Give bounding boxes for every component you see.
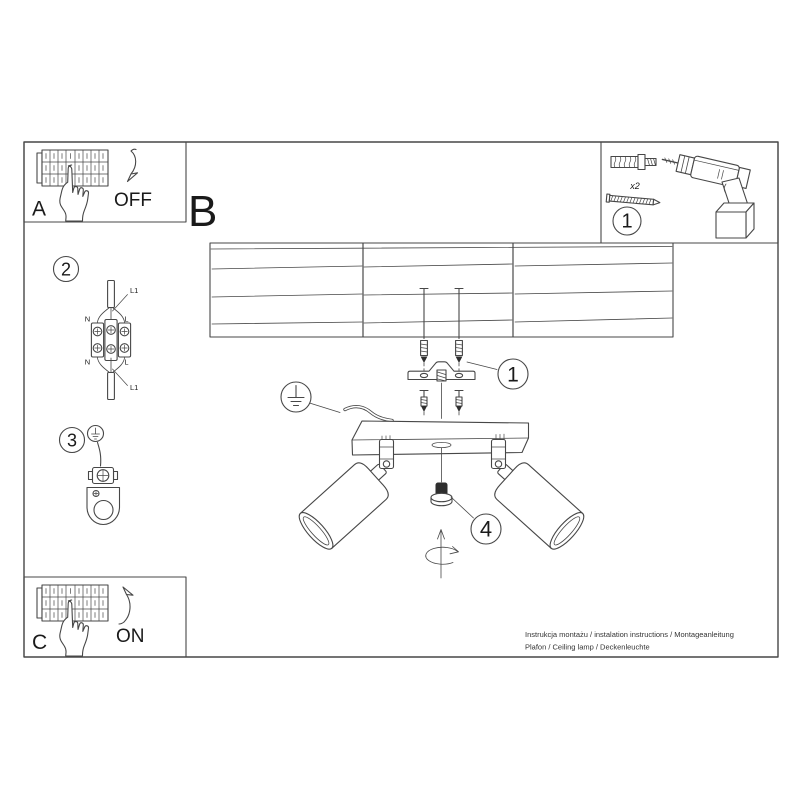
- grounding-step: 3: [60, 426, 120, 525]
- wiring-step-number: 2: [61, 260, 71, 280]
- power-on-step-box: C ON: [24, 577, 186, 657]
- adjust-step-number: 4: [480, 517, 492, 542]
- mounting-bracket: [408, 362, 475, 381]
- section-letter-b: B: [188, 187, 217, 236]
- arrow-up-icon: [119, 587, 133, 624]
- ground-wire: [98, 443, 101, 467]
- footer-line-2: Plafon / Ceiling lamp / Deckenleuchte: [525, 643, 650, 652]
- page-border: [24, 142, 778, 657]
- callout-4-leader: [451, 497, 474, 518]
- cable-bottom: [108, 373, 115, 400]
- step-c-letter: C: [32, 631, 47, 654]
- ground-symbol-icon: [281, 382, 340, 413]
- tools-step-number: 1: [621, 211, 632, 233]
- callout-1-leader: [467, 362, 497, 370]
- screw-icon: [606, 194, 660, 207]
- ground-terminal: [89, 468, 118, 484]
- instruction-sheet: A OFF B x2: [0, 0, 800, 800]
- tools-box: x2 1: [601, 142, 778, 243]
- power-cable: [345, 407, 392, 421]
- grounding-step-number: 3: [67, 431, 77, 451]
- footer: Instrukcja montażu / instalation instruc…: [525, 630, 734, 652]
- step-a-letter: A: [32, 198, 46, 221]
- terminal-block: [91, 320, 130, 361]
- mounting-step: 1: [408, 289, 528, 419]
- wire-label-l1-bottom: L1: [130, 383, 138, 392]
- wire-label-l1-top: L1: [130, 286, 138, 295]
- left-knuckle: [380, 440, 394, 469]
- mounting-step-number: 1: [507, 364, 519, 387]
- on-label: ON: [116, 626, 145, 647]
- rotation-arrow-icon: [426, 530, 459, 579]
- ground-symbol-small-icon: [88, 426, 104, 442]
- wire-label-n-top: N: [85, 315, 90, 324]
- lamp-canopy-part: [87, 488, 120, 525]
- adjust-knob: [431, 448, 452, 506]
- wire-label-l-bottom: L: [124, 358, 128, 367]
- footer-line-1: Instrukcja montażu / instalation instruc…: [525, 630, 734, 639]
- lamp-assembly: 4: [281, 382, 589, 578]
- wiring-step: 2 N L L1 N L L1: [54, 257, 139, 400]
- power-off-step-box: A OFF: [24, 142, 186, 222]
- drill-icon: [660, 149, 754, 238]
- wire-label-n-bottom: N: [85, 358, 90, 367]
- right-knuckle: [492, 440, 506, 469]
- cable-top: [108, 281, 115, 308]
- ceiling-screw-left: [420, 289, 428, 378]
- ceiling-illustration: [210, 243, 673, 337]
- ceiling-screw-right: [455, 289, 463, 378]
- bracket-screw-left: [420, 391, 428, 417]
- wall-plug-icon: [611, 155, 656, 170]
- wire-label-l-top: L: [124, 315, 128, 324]
- dowel-quantity-label: x2: [629, 181, 640, 191]
- arrow-down-icon: [128, 149, 138, 181]
- bracket-screw-right: [455, 391, 463, 417]
- off-label: OFF: [114, 190, 152, 211]
- instruction-drawing: A OFF B x2: [0, 0, 800, 800]
